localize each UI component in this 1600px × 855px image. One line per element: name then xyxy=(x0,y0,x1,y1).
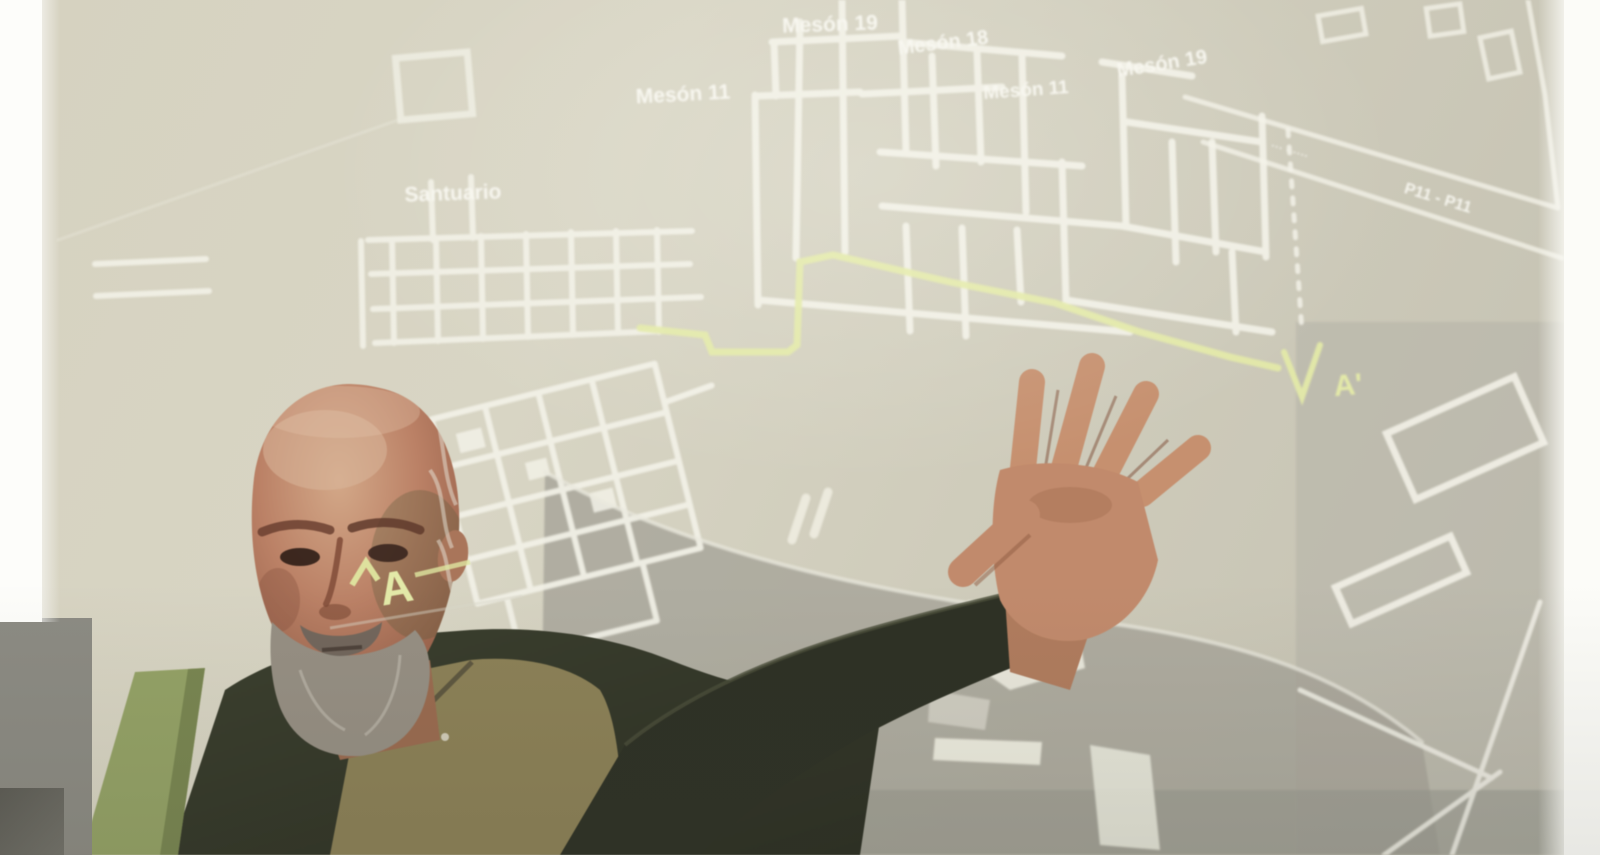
bottom-left-dark-shadow xyxy=(0,788,64,855)
middle-finger xyxy=(1064,366,1092,468)
left-white-strip xyxy=(0,0,42,622)
index-finger xyxy=(1022,382,1032,478)
palm-shading xyxy=(1028,487,1112,523)
photo-of-presenter-with-projected-site-plan: Mesón 11 Mesón 19 Mesón 18 Mesón 11 Mesó… xyxy=(0,0,1600,855)
right-strip-edge xyxy=(1538,0,1564,855)
shirt-button xyxy=(441,733,449,741)
nose-shadow xyxy=(319,604,351,620)
right-white-strip xyxy=(1564,0,1600,855)
left-strip-edge xyxy=(42,0,60,622)
presenter: A xyxy=(0,0,1600,855)
left-eye xyxy=(280,548,320,566)
